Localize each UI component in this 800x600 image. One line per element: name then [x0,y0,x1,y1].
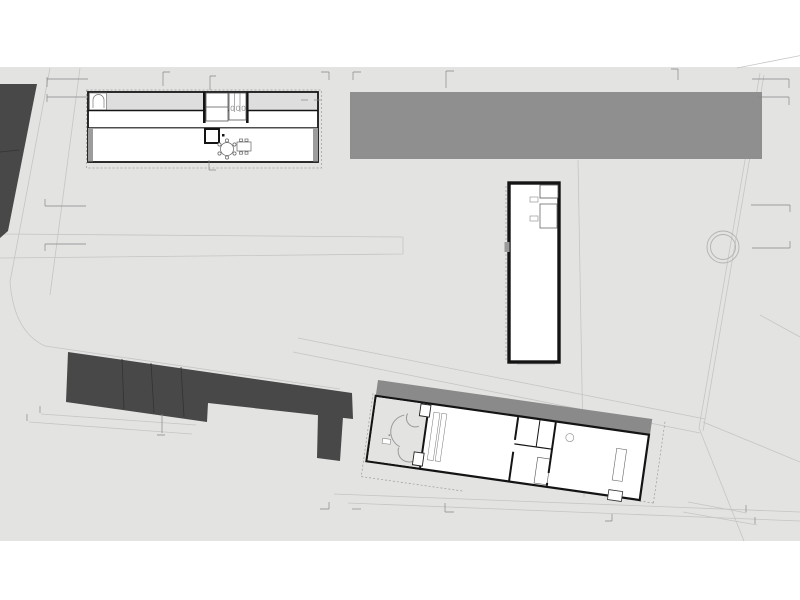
stair [540,204,557,228]
entrance-canopy [505,242,510,252]
site-plan-page [0,0,800,600]
stair-core [203,92,249,123]
foyer-desk [382,438,391,444]
building-pavilion-vertical [505,183,560,365]
stair-left [90,93,107,110]
vestibule [419,404,431,417]
edge [737,36,800,68]
vestibule [412,452,424,466]
roof-slab-building [350,92,762,159]
building-north-floorplan [87,90,322,168]
site-plan-drawing [0,0,800,600]
balcony-notch [540,185,558,198]
recess [607,490,622,502]
elevator [205,129,219,143]
column [222,134,225,137]
